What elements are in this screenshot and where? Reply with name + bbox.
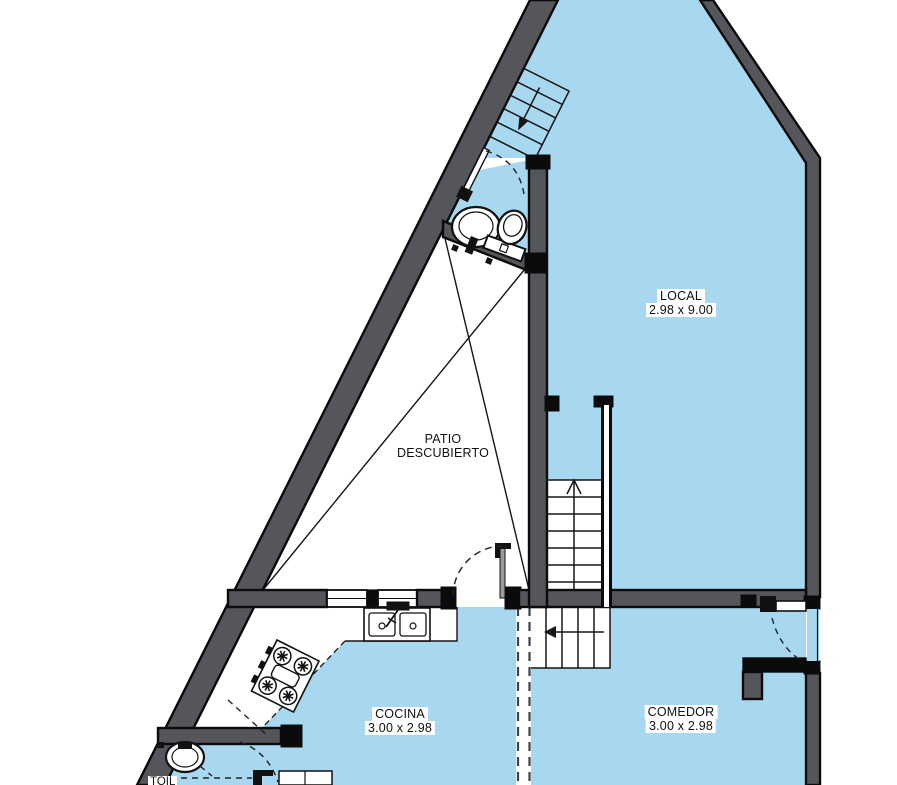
wall-stairwell — [529, 158, 547, 607]
vestibule-wall — [743, 658, 806, 672]
label-toilette: TOIL — [148, 776, 177, 785]
exterior-wall-right-lower — [806, 673, 820, 785]
stair-main-flight — [547, 480, 602, 607]
level-change-dashed-line — [516, 607, 531, 785]
vestibule-wall-return — [743, 672, 762, 699]
stair-wall-flange — [545, 396, 559, 411]
floor-plan: LOCAL 2.98 x 9.00 PATIO DESCUBIERTO COCI… — [0, 0, 897, 785]
wall-end-cap — [525, 253, 547, 273]
kitchen-sink-icon — [364, 602, 430, 641]
stair-lower-flight — [530, 607, 610, 668]
wall-end-cap — [526, 155, 550, 169]
floor-plan-drawing — [0, 0, 897, 785]
structural-column — [741, 595, 756, 607]
wall-cocina-top-left — [228, 590, 327, 607]
wall-cocina-top-right — [417, 590, 443, 607]
window-mullion — [367, 590, 378, 607]
wall-end-cap — [281, 725, 302, 747]
